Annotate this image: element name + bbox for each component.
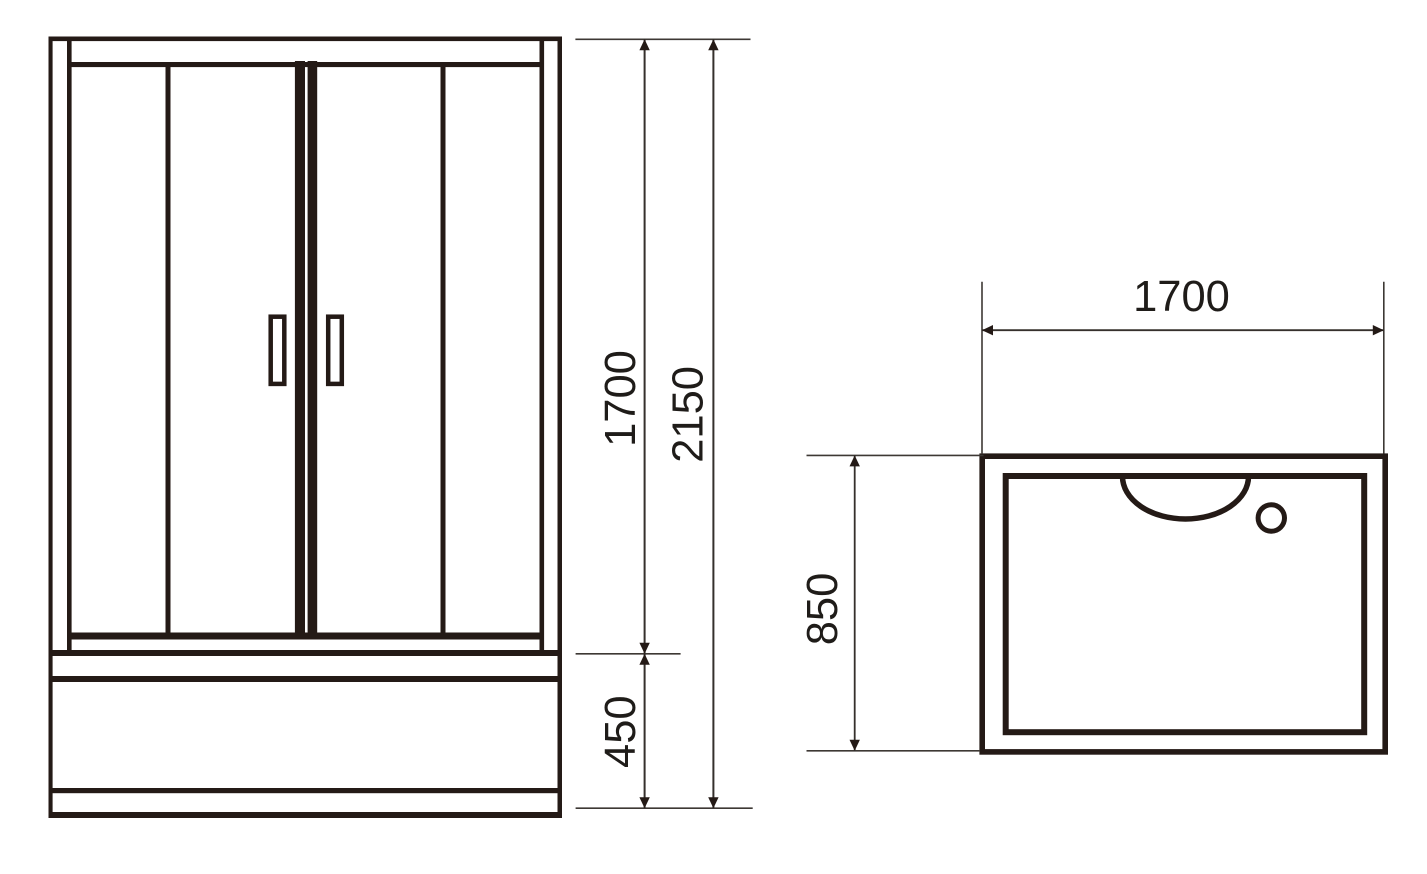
svg-text:2150: 2150 xyxy=(664,366,712,463)
svg-text:850: 850 xyxy=(799,573,847,646)
svg-text:1700: 1700 xyxy=(597,350,645,447)
svg-text:450: 450 xyxy=(597,695,645,768)
svg-text:1700: 1700 xyxy=(1133,273,1230,321)
